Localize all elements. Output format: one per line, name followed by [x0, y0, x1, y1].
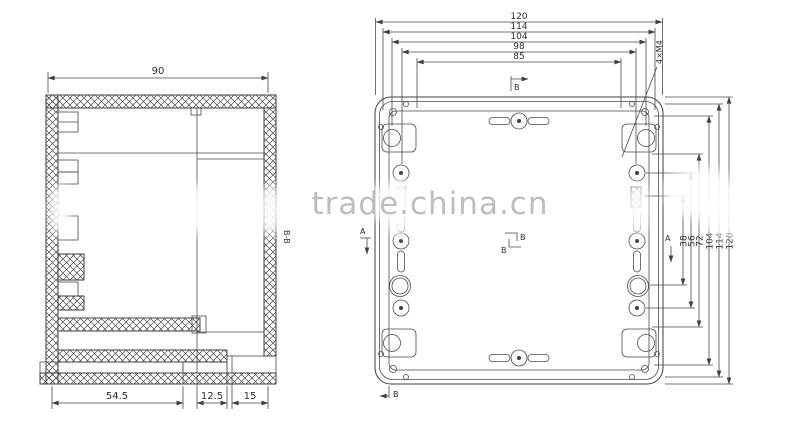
- svg-text:38: 38: [680, 235, 690, 247]
- section-mark-b-bottom: B: [380, 386, 399, 399]
- svg-text:98: 98: [513, 42, 525, 52]
- drill-hole: [630, 375, 635, 380]
- screw-boss-top: [489, 113, 549, 129]
- screw-boss-hatched: [58, 254, 84, 280]
- watermark-glow: [50, 184, 70, 236]
- drill-hole: [404, 375, 409, 380]
- flange-step: [40, 362, 183, 373]
- m4-hole: [638, 335, 655, 352]
- dim-90-label: 90: [152, 66, 165, 77]
- corner-pad: [382, 329, 416, 357]
- thread-callout-group: 4×M4: [622, 40, 664, 157]
- hole-center: [399, 171, 403, 175]
- watermark: trade.china.cn: [50, 167, 745, 238]
- dim-54-5-label: 54.5: [106, 391, 128, 402]
- lid-plate-hatched: [58, 318, 200, 331]
- screw-boss: [58, 172, 78, 184]
- corner-pad: [622, 124, 656, 152]
- enclosure-outline: [375, 97, 663, 384]
- svg-text:B: B: [520, 233, 526, 242]
- svg-text:B: B: [393, 390, 399, 399]
- dim-15-label: 15: [244, 391, 257, 402]
- svg-text:A: A: [360, 227, 366, 236]
- flange-step-right: [227, 356, 276, 373]
- flange-hatched: [40, 373, 276, 384]
- svg-text:A: A: [665, 234, 671, 243]
- hole-center: [635, 171, 639, 175]
- corner-pad: [382, 124, 416, 152]
- left-wall-hatched: [46, 95, 58, 384]
- left-view-section: 90: [40, 66, 291, 409]
- watermark-glow: [701, 198, 745, 238]
- watermark-glow: [186, 184, 208, 236]
- outer-edge: [375, 97, 663, 384]
- dim-12-5-label: 12.5: [201, 391, 223, 402]
- technical-drawing: 90: [0, 0, 800, 425]
- hole-center: [399, 306, 403, 310]
- m4-hole: [384, 335, 401, 352]
- screw-boss: [58, 282, 78, 296]
- corner-drill-holes: [379, 102, 660, 380]
- corner-pad: [622, 329, 656, 357]
- section-mark-a-right: A: [665, 234, 671, 262]
- watermark-text: trade.china.cn: [312, 186, 549, 222]
- lid-and-flange: [40, 316, 276, 384]
- gland-hole-inner: [630, 278, 646, 294]
- section-label-bb: B-B: [282, 230, 291, 244]
- recess-edge: [389, 111, 649, 370]
- rim-notch: [191, 108, 201, 115]
- drawing-canvas: 90: [0, 0, 800, 425]
- winged-bosses: [393, 113, 645, 366]
- corner-pads: [382, 124, 656, 357]
- bottom-wall-hatched: [58, 350, 227, 362]
- m4-hole: [384, 130, 401, 147]
- dimensions-right: 120 114 104 72 56: [644, 97, 736, 384]
- section-mark-b-center: B B: [501, 233, 526, 255]
- gland-hole-inner: [392, 278, 408, 294]
- dimension-54-5: 54.5: [52, 386, 183, 409]
- svg-text:85: 85: [513, 52, 524, 62]
- lid-edge: [380, 102, 659, 380]
- section-interior-lines: [58, 108, 264, 373]
- drill-hole: [404, 102, 409, 107]
- screw-boss-hatched: [58, 296, 84, 310]
- top-wall-hatched: [46, 95, 276, 108]
- svg-text:B: B: [514, 83, 520, 92]
- dim-top-85: 85: [417, 52, 621, 108]
- watermark-glow: [625, 182, 649, 234]
- screw-boss-bottom: [489, 350, 549, 366]
- m4-hole: [638, 130, 655, 147]
- svg-text:114: 114: [510, 22, 527, 32]
- svg-text:120: 120: [510, 12, 527, 22]
- dimension-90: 90: [48, 66, 268, 93]
- gland-hole: [390, 276, 411, 297]
- section-mark-a-left: A: [360, 227, 371, 254]
- hole-center: [635, 306, 639, 310]
- screw-boss: [58, 160, 78, 172]
- drill-hole: [630, 102, 635, 107]
- gland-hole: [628, 276, 649, 297]
- section-walls: [46, 95, 276, 384]
- svg-text:104: 104: [510, 32, 527, 42]
- section-mark-b-top: B: [511, 76, 528, 92]
- watermark-glow: [259, 184, 281, 236]
- svg-text:B: B: [501, 246, 507, 255]
